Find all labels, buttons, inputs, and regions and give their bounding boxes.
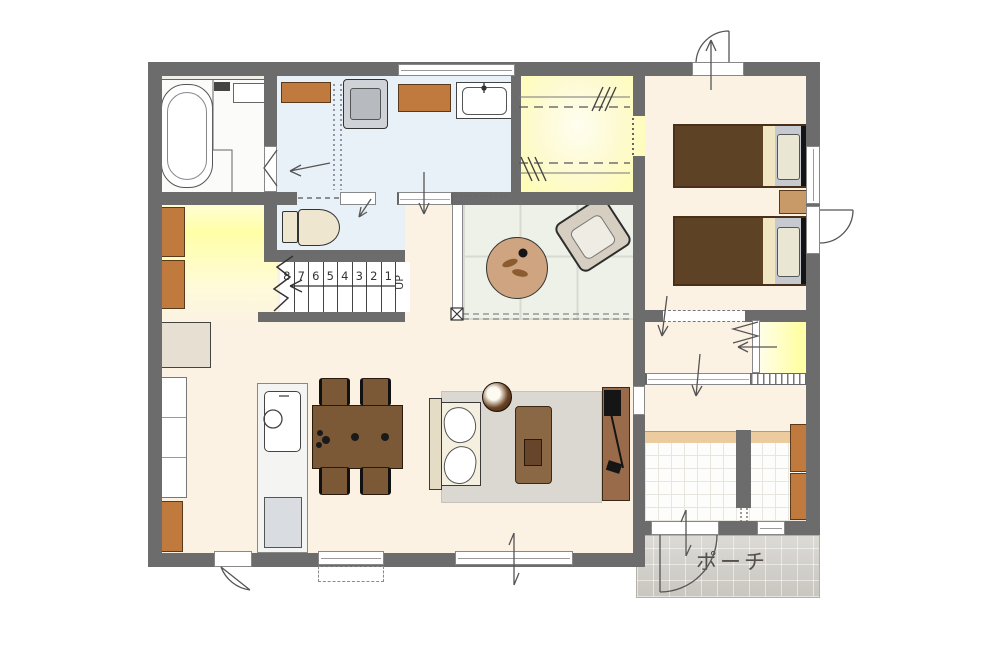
bed <box>673 124 810 188</box>
wall-bedroom-bottom-left <box>645 310 663 322</box>
wall-right <box>806 62 820 535</box>
stair-number: 2 <box>370 269 377 283</box>
dining-chair <box>319 467 350 495</box>
stair-number: 1 <box>385 269 392 283</box>
stair-number: 4 <box>341 269 348 283</box>
walk-in-closet <box>511 62 645 205</box>
stair-tread: 5 <box>324 262 339 312</box>
wall-genkan-join <box>633 535 645 567</box>
wall-center-spine <box>633 156 645 388</box>
bed-blanket <box>675 218 763 284</box>
dining-table <box>312 405 403 469</box>
stairs: 8 7 6 5 4 3 2 1 <box>280 262 396 312</box>
wall-bath-right <box>264 62 277 146</box>
bedroom-door-top <box>692 62 744 76</box>
shower-fixture <box>214 82 230 91</box>
wall-left <box>148 62 162 567</box>
door-swing-arc <box>820 210 853 243</box>
tatami-low-wall <box>452 195 463 320</box>
nightstand <box>779 190 809 214</box>
stair-tread: 8 <box>280 262 295 312</box>
washroom-sliding-door <box>397 192 453 205</box>
refrigerator <box>161 322 211 368</box>
washroom-shelf <box>398 84 451 112</box>
ldk-hall-door <box>633 386 645 415</box>
stair-number: 5 <box>327 269 334 283</box>
coffee-table-tray <box>524 439 542 466</box>
dining-chair <box>319 378 350 406</box>
bed-fold <box>763 126 775 186</box>
genkan-partition <box>736 430 751 508</box>
stair-tread: 7 <box>295 262 310 312</box>
wall-washroom-right <box>511 76 521 205</box>
door-swing-arc <box>696 31 729 62</box>
bed-fold <box>763 218 775 284</box>
dining-chair <box>360 467 391 495</box>
wall-bath-bottom <box>148 192 277 205</box>
entrance-door <box>651 521 719 535</box>
washroom-window <box>398 64 515 76</box>
kitchen-window-outline <box>318 566 384 582</box>
floor-pouf <box>482 382 512 412</box>
round-table <box>486 237 548 299</box>
entrance-window <box>757 521 785 535</box>
bathroom-folding-door <box>264 146 277 192</box>
bedroom-window-right <box>806 146 820 204</box>
porch-label: ポーチ <box>696 546 768 576</box>
pillow <box>777 227 800 277</box>
stair-tread: 2 <box>367 262 382 312</box>
stair-number: 3 <box>356 269 363 283</box>
pantry-cabinet <box>161 207 185 257</box>
vanity-basin <box>462 87 507 115</box>
stair-number: 6 <box>312 269 319 283</box>
dining-chair <box>360 378 391 406</box>
wall-toilet-top <box>277 192 297 205</box>
bathtub-inner <box>167 92 207 180</box>
toilet-tank <box>282 211 298 243</box>
pillow <box>777 134 800 179</box>
kitchen-sink <box>264 391 301 452</box>
pantry-cabinet <box>161 260 185 309</box>
wall-tatami-top <box>452 192 633 205</box>
door-swing-arc <box>221 567 250 590</box>
floor-plan: ポーチ <box>0 0 1000 667</box>
closet-door-leaf <box>752 320 760 373</box>
up-label: UP <box>393 275 406 290</box>
stair-tread: 6 <box>309 262 324 312</box>
kitchen-low-cabinet <box>159 501 183 552</box>
bedroom-door-right <box>806 206 820 254</box>
hall-closet <box>758 322 806 373</box>
genkan-tile <box>645 443 806 521</box>
stair-tread: 4 <box>338 262 353 312</box>
kitchen-back-door <box>214 551 252 567</box>
stair-tread: 3 <box>353 262 368 312</box>
wall-wic-right-top <box>633 76 645 116</box>
hall-counter <box>750 373 806 385</box>
washing-machine-drum <box>350 88 381 120</box>
washroom-shelf <box>281 82 331 103</box>
wall-stairs-bottom <box>258 312 405 322</box>
bedroom-sliding-door <box>663 310 745 322</box>
kitchen-window <box>318 551 384 565</box>
wall-center-spine-lower <box>633 413 645 523</box>
stair-number: 8 <box>283 269 290 283</box>
wall-toilet-bottom <box>264 250 405 262</box>
hall-sliding-door <box>645 373 752 385</box>
genkan-step <box>645 431 790 443</box>
living-window <box>455 551 573 565</box>
stove <box>264 497 302 548</box>
tv-board <box>602 387 630 501</box>
bed <box>673 216 810 286</box>
toilet-door <box>340 192 376 205</box>
toilet-bowl <box>298 209 340 246</box>
bed-blanket <box>675 126 763 186</box>
stair-number: 7 <box>298 269 305 283</box>
